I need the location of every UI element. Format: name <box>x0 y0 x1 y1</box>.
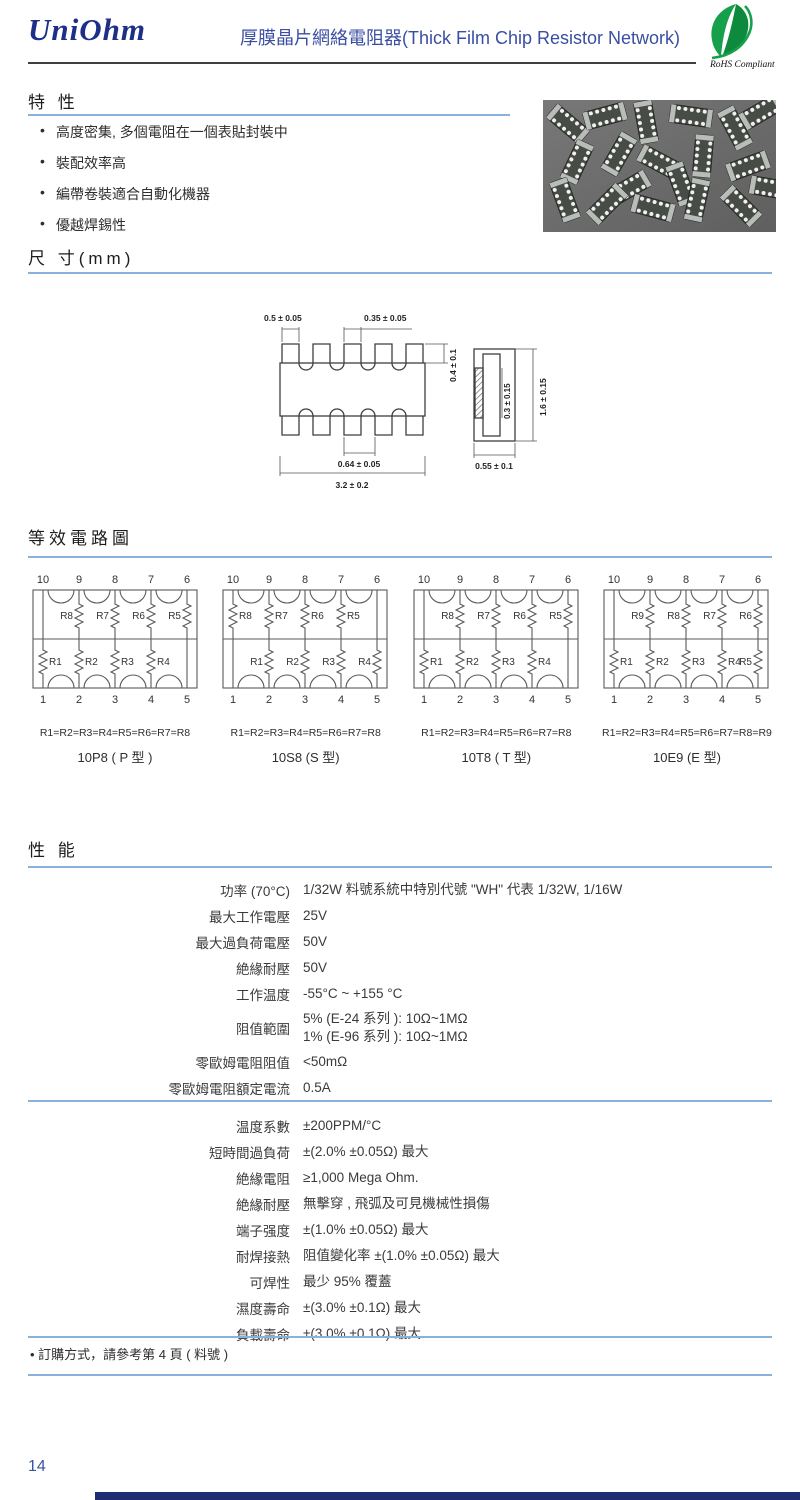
rohs-label: RoHS Compliant <box>710 60 775 70</box>
pin-number: 10 <box>608 574 620 586</box>
circuit-diagrams: R8R7R6R5R1R2R3R410987612345R1=R2=R3=R4=R… <box>22 570 780 766</box>
spec-row: 絶緣電阻≥1,000 Mega Ohm. <box>28 1168 772 1188</box>
resistor-label: R6 <box>513 611 526 622</box>
dim-side-inner: 0.3 ± 0.15 <box>503 383 512 419</box>
spec-row: 阻值範圍5% (E-24 系列 ): 10Ω~1MΩ1% (E-96 系列 ):… <box>28 1010 772 1046</box>
datasheet-page: UniOhm 厚膜晶片網絡電阻器(Thick Film Chip Resisto… <box>0 0 800 1500</box>
spec-label: 絶緣電阻 <box>28 1168 290 1188</box>
spec-label: 短時間過負荷 <box>28 1142 290 1162</box>
rohs-badge: RoHS Compliant <box>700 0 798 80</box>
pin-number: 1 <box>230 694 236 706</box>
order-note: • 訂購方式，請參考第 4 頁 ( 料號 ) <box>30 1344 228 1363</box>
note-divider-top <box>28 1336 772 1338</box>
pin-number: 2 <box>647 694 653 706</box>
spec-value: ≥1,000 Mega Ohm. <box>303 1169 418 1187</box>
resistor-label: R4 <box>358 657 371 668</box>
circuit-name: 10T8 ( T 型) <box>403 747 589 766</box>
spec-label: 負載壽命 <box>28 1324 290 1344</box>
pin-number: 1 <box>39 694 45 706</box>
resistor-label: R2 <box>85 657 98 668</box>
resistor-label: R3 <box>502 657 515 668</box>
dim-pad-height: 0.4 ± 0.1 <box>448 349 458 382</box>
spec-value: 5% (E-24 系列 ): 10Ω~1MΩ1% (E-96 系列 ): 10Ω… <box>303 1010 468 1046</box>
spec-label: 可焊性 <box>28 1272 290 1292</box>
spec-label: 工作温度 <box>28 984 290 1004</box>
performance-underline <box>28 866 772 868</box>
spec-value: 最少 95% 覆蓋 <box>303 1273 392 1291</box>
pin-number: 9 <box>647 574 653 586</box>
spec-block-1: 功率 (70°C)1/32W 料號系統中特別代號 "WH" 代表 1/32W, … <box>28 880 772 1104</box>
spec-value: -55°C ~ +155 °C <box>303 985 402 1003</box>
pin-number: 4 <box>338 694 344 706</box>
spec-label: 零歐姆電阻額定電流 <box>28 1078 290 1098</box>
dim-side-width: 0.55 ± 0.1 <box>475 461 513 471</box>
circuit-svg: R8R7R6R5R1R2R3R410987612345 <box>213 570 398 720</box>
spec-row: 可焊性最少 95% 覆蓋 <box>28 1272 772 1292</box>
resistor-label: R7 <box>96 611 109 622</box>
resistor-label: R1 <box>430 657 443 668</box>
resistor-label: R1 <box>250 657 263 668</box>
spec-value: 無擊穿 , 飛弧及可見機械性損傷 <box>303 1195 490 1213</box>
spec-row: 零歐姆電阻阻值<50mΩ <box>28 1052 772 1072</box>
spec-label: 絶緣耐壓 <box>28 958 290 978</box>
spec-label: 最大工作電壓 <box>28 906 290 926</box>
features-underline <box>28 114 510 116</box>
circuit-name: 10E9 (E 型) <box>594 747 780 766</box>
resistor-label: R5 <box>168 611 181 622</box>
feature-item: 高度密集, 多個電阻在一個表貼封裝中 <box>40 122 288 142</box>
pin-number: 6 <box>374 574 380 586</box>
resistor-label: R5 <box>549 611 562 622</box>
pin-number: 3 <box>302 694 308 706</box>
circuit-diagram: R8R7R6R5R1R2R3R410987612345R1=R2=R3=R4=R… <box>22 570 208 766</box>
spec-row: 工作温度-55°C ~ +155 °C <box>28 984 772 1004</box>
spec-label: 最大過負荷電壓 <box>28 932 290 952</box>
spec-label: 功率 (70°C) <box>28 880 290 900</box>
resistor-label: R8 <box>441 611 454 622</box>
dim-body-length: 3.2 ± 0.2 <box>335 480 368 490</box>
spec-row: 最大過負荷電壓50V <box>28 932 772 952</box>
spec-divider <box>28 1100 772 1102</box>
circuit-diagram: R8R7R6R5R1R2R3R410987612345R1=R2=R3=R4=R… <box>403 570 589 766</box>
pin-number: 9 <box>266 574 272 586</box>
header-divider <box>28 62 696 64</box>
spec-value: ±(1.0% ±0.05Ω) 最大 <box>303 1221 428 1239</box>
resistor-label: R8 <box>60 611 73 622</box>
pin-number: 6 <box>755 574 761 586</box>
page-number: 14 <box>28 1458 46 1476</box>
spec-value: ±(2.0% ±0.05Ω) 最大 <box>303 1143 428 1161</box>
spec-label: 端子强度 <box>28 1220 290 1240</box>
circuits-heading: 等效電路圖 <box>28 524 133 549</box>
pin-number: 10 <box>36 574 48 586</box>
dim-pad-top: 0.35 ± 0.05 <box>364 313 407 323</box>
pin-number: 3 <box>493 694 499 706</box>
resistor-label: R8 <box>239 611 252 622</box>
resistor-label: R4 <box>538 657 551 668</box>
resistor-label: R7 <box>704 611 717 622</box>
spec-value: 阻值變化率 ±(1.0% ±0.05Ω) 最大 <box>303 1247 500 1265</box>
pin-number: 7 <box>147 574 153 586</box>
pin-number: 1 <box>611 694 617 706</box>
resistor-label: R2 <box>656 657 669 668</box>
spec-value: ±200PPM/°C <box>303 1117 381 1135</box>
spec-row: 零歐姆電阻額定電流0.5A <box>28 1078 772 1098</box>
spec-value: ±(3.0% ±0.1Ω) 最大 <box>303 1325 421 1343</box>
spec-value: 1/32W 料號系統中特別代號 "WH" 代表 1/32W, 1/16W <box>303 881 622 899</box>
pin-number: 7 <box>719 574 725 586</box>
circuit-diagram: R8R7R6R5R1R2R3R410987612345R1=R2=R3=R4=R… <box>213 570 399 766</box>
product-photo <box>543 100 776 232</box>
circuit-equation: R1=R2=R3=R4=R5=R6=R7=R8=R9 <box>594 727 780 739</box>
spec-value: <50mΩ <box>303 1053 347 1071</box>
spec-value: 25V <box>303 907 327 925</box>
spec-label: 零歐姆電阻阻值 <box>28 1052 290 1072</box>
pin-number: 9 <box>457 574 463 586</box>
pin-number: 3 <box>683 694 689 706</box>
pin-number: 7 <box>529 574 535 586</box>
spec-row: 負載壽命±(3.0% ±0.1Ω) 最大 <box>28 1324 772 1344</box>
pin-number: 6 <box>565 574 571 586</box>
brand-logo: UniOhm <box>28 12 146 48</box>
resistor-label: R7 <box>477 611 490 622</box>
pin-number: 4 <box>719 694 725 706</box>
features-list: 高度密集, 多個電阻在一個表貼封裝中裝配效率高編帶卷裝適合自動化機器優越焊錫性 <box>40 122 288 246</box>
dim-side-height: 1.6 ± 0.15 <box>538 378 548 416</box>
pin-number: 1 <box>421 694 427 706</box>
circuit-svg: R8R7R6R5R1R2R3R410987612345 <box>23 570 208 720</box>
pin-number: 5 <box>183 694 189 706</box>
pin-number: 8 <box>493 574 499 586</box>
circuit-svg: R8R7R6R5R1R2R3R410987612345 <box>404 570 589 720</box>
note-divider-bottom <box>28 1374 772 1376</box>
spec-row: 耐焊接熱阻值變化率 ±(1.0% ±0.05Ω) 最大 <box>28 1246 772 1266</box>
resistor-label: R2 <box>286 657 299 668</box>
resistor-label: R1 <box>620 657 633 668</box>
spec-value: 50V <box>303 933 327 951</box>
pin-number: 3 <box>111 694 117 706</box>
spec-row: 絶緣耐壓50V <box>28 958 772 978</box>
spec-label: 絶緣耐壓 <box>28 1194 290 1214</box>
circuit-name: 10S8 (S 型) <box>213 747 399 766</box>
circuits-underline <box>28 556 772 558</box>
resistor-label: R6 <box>132 611 145 622</box>
spec-block-2: 温度系數±200PPM/°C短時間過負荷±(2.0% ±0.05Ω) 最大絶緣電… <box>28 1116 772 1350</box>
pin-number: 2 <box>75 694 81 706</box>
spec-value: 50V <box>303 959 327 977</box>
spec-row: 最大工作電壓25V <box>28 906 772 926</box>
dim-pad-width: 0.5 ± 0.05 <box>264 313 302 323</box>
spec-row: 端子强度±(1.0% ±0.05Ω) 最大 <box>28 1220 772 1240</box>
resistor-label: R3 <box>692 657 705 668</box>
spec-row: 功率 (70°C)1/32W 料號系統中特別代號 "WH" 代表 1/32W, … <box>28 880 772 900</box>
circuit-diagram: R9R8R7R6R1R2R3R4R510987612345R1=R2=R3=R4… <box>594 570 780 766</box>
pin-number: 2 <box>457 694 463 706</box>
resistor-label: R2 <box>466 657 479 668</box>
page-title: 厚膜晶片網絡電阻器(Thick Film Chip Resistor Netwo… <box>240 24 680 50</box>
dimensions-underline <box>28 272 772 274</box>
resistor-label: R3 <box>121 657 134 668</box>
pin-number: 7 <box>338 574 344 586</box>
dim-pad-pitch: 0.64 ± 0.05 <box>338 459 381 469</box>
feature-item: 編帶卷裝適合自動化機器 <box>40 184 288 204</box>
spec-value: ±(3.0% ±0.1Ω) 最大 <box>303 1299 421 1317</box>
pin-number: 2 <box>266 694 272 706</box>
spec-label: 濕度壽命 <box>28 1298 290 1318</box>
pin-number: 5 <box>374 694 380 706</box>
features-heading: 特 性 <box>28 88 79 113</box>
resistor-label: R9 <box>632 611 645 622</box>
resistor-label: R3 <box>322 657 335 668</box>
circuit-svg: R9R8R7R6R1R2R3R4R510987612345 <box>594 570 779 720</box>
circuit-equation: R1=R2=R3=R4=R5=R6=R7=R8 <box>213 727 399 739</box>
spec-row: 絶緣耐壓無擊穿 , 飛弧及可見機械性損傷 <box>28 1194 772 1214</box>
pin-number: 8 <box>302 574 308 586</box>
pin-number: 9 <box>75 574 81 586</box>
pin-number: 4 <box>147 694 153 706</box>
spec-row: 濕度壽命±(3.0% ±0.1Ω) 最大 <box>28 1298 772 1318</box>
spec-row: 温度系數±200PPM/°C <box>28 1116 772 1136</box>
pin-number: 10 <box>227 574 239 586</box>
pin-number: 8 <box>683 574 689 586</box>
pin-number: 5 <box>755 694 761 706</box>
resistor-label: R6 <box>740 611 753 622</box>
resistor-label: R8 <box>668 611 681 622</box>
pin-number: 10 <box>418 574 430 586</box>
resistor-label: R1 <box>49 657 62 668</box>
dimensions-heading: 尺 寸(mm) <box>28 244 134 269</box>
pin-number: 5 <box>565 694 571 706</box>
spec-row: 短時間過負荷±(2.0% ±0.05Ω) 最大 <box>28 1142 772 1162</box>
feature-item: 裝配效率高 <box>40 153 288 173</box>
spec-value: 0.5A <box>303 1079 331 1097</box>
pin-number: 4 <box>529 694 535 706</box>
resistor-label: R6 <box>311 611 324 622</box>
performance-heading: 性 能 <box>28 836 79 861</box>
pin-number: 6 <box>183 574 189 586</box>
spec-label: 耐焊接熱 <box>28 1246 290 1266</box>
resistor-label: R5 <box>347 611 360 622</box>
circuit-equation: R1=R2=R3=R4=R5=R6=R7=R8 <box>22 727 208 739</box>
footer-bar <box>95 1492 800 1500</box>
feature-item: 優越焊錫性 <box>40 215 288 235</box>
pin-number: 8 <box>111 574 117 586</box>
resistor-label: R4 <box>157 657 170 668</box>
circuit-name: 10P8 ( P 型 ) <box>22 747 208 766</box>
dimensions-drawing: 0.5 ± 0.05 0.35 ± 0.05 0.4 ± 0.1 0.64 ± … <box>252 306 562 496</box>
resistor-label: R5 <box>740 657 753 668</box>
spec-label: 温度系數 <box>28 1116 290 1136</box>
rohs-leaf-icon <box>700 0 762 60</box>
spec-label: 阻值範圍 <box>28 1018 290 1038</box>
circuit-equation: R1=R2=R3=R4=R5=R6=R7=R8 <box>403 727 589 739</box>
resistor-label: R7 <box>275 611 288 622</box>
